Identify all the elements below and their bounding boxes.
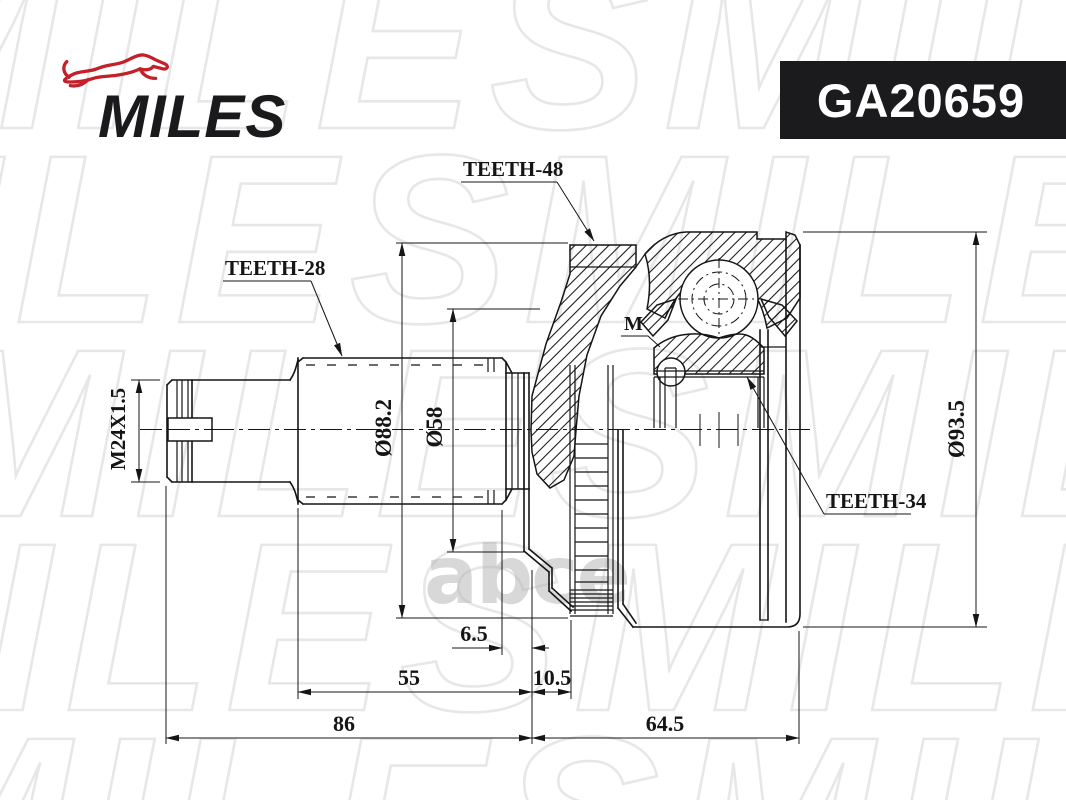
- label-teeth-34: TEETH-34: [826, 489, 927, 513]
- logo-wordmark: MILES: [98, 83, 286, 150]
- dim-housing-diameter: Ø93.5: [944, 400, 969, 458]
- label-teeth-28: TEETH-28: [225, 256, 325, 280]
- snap-ring-detail: [657, 358, 685, 386]
- dim-groove-width: 6.5: [460, 621, 488, 646]
- label-teeth-48: TEETH-48: [463, 157, 563, 181]
- dim-ring-diameter: Ø88.2: [371, 399, 396, 457]
- dim-boot-seat-diameter: Ø58: [422, 407, 447, 448]
- watermark-row: MILESMILES: [0, 687, 1066, 800]
- dim-housing-length: 64.5: [646, 711, 685, 736]
- product-technical-image: MILESMILES MILESMILES MILESMILES MILESMI…: [0, 0, 1066, 800]
- dim-thread-spec: M24X1.5: [106, 388, 130, 470]
- part-number-text: GA20659: [817, 74, 1025, 127]
- dim-ring-offset: 10.5: [533, 665, 572, 690]
- label-cage-mark: M: [624, 313, 643, 335]
- part-number-badge: GA20659: [780, 61, 1066, 139]
- dim-spline-length: 55: [398, 665, 420, 690]
- center-watermark: abce: [424, 529, 629, 622]
- dim-shaft-length: 86: [333, 711, 355, 736]
